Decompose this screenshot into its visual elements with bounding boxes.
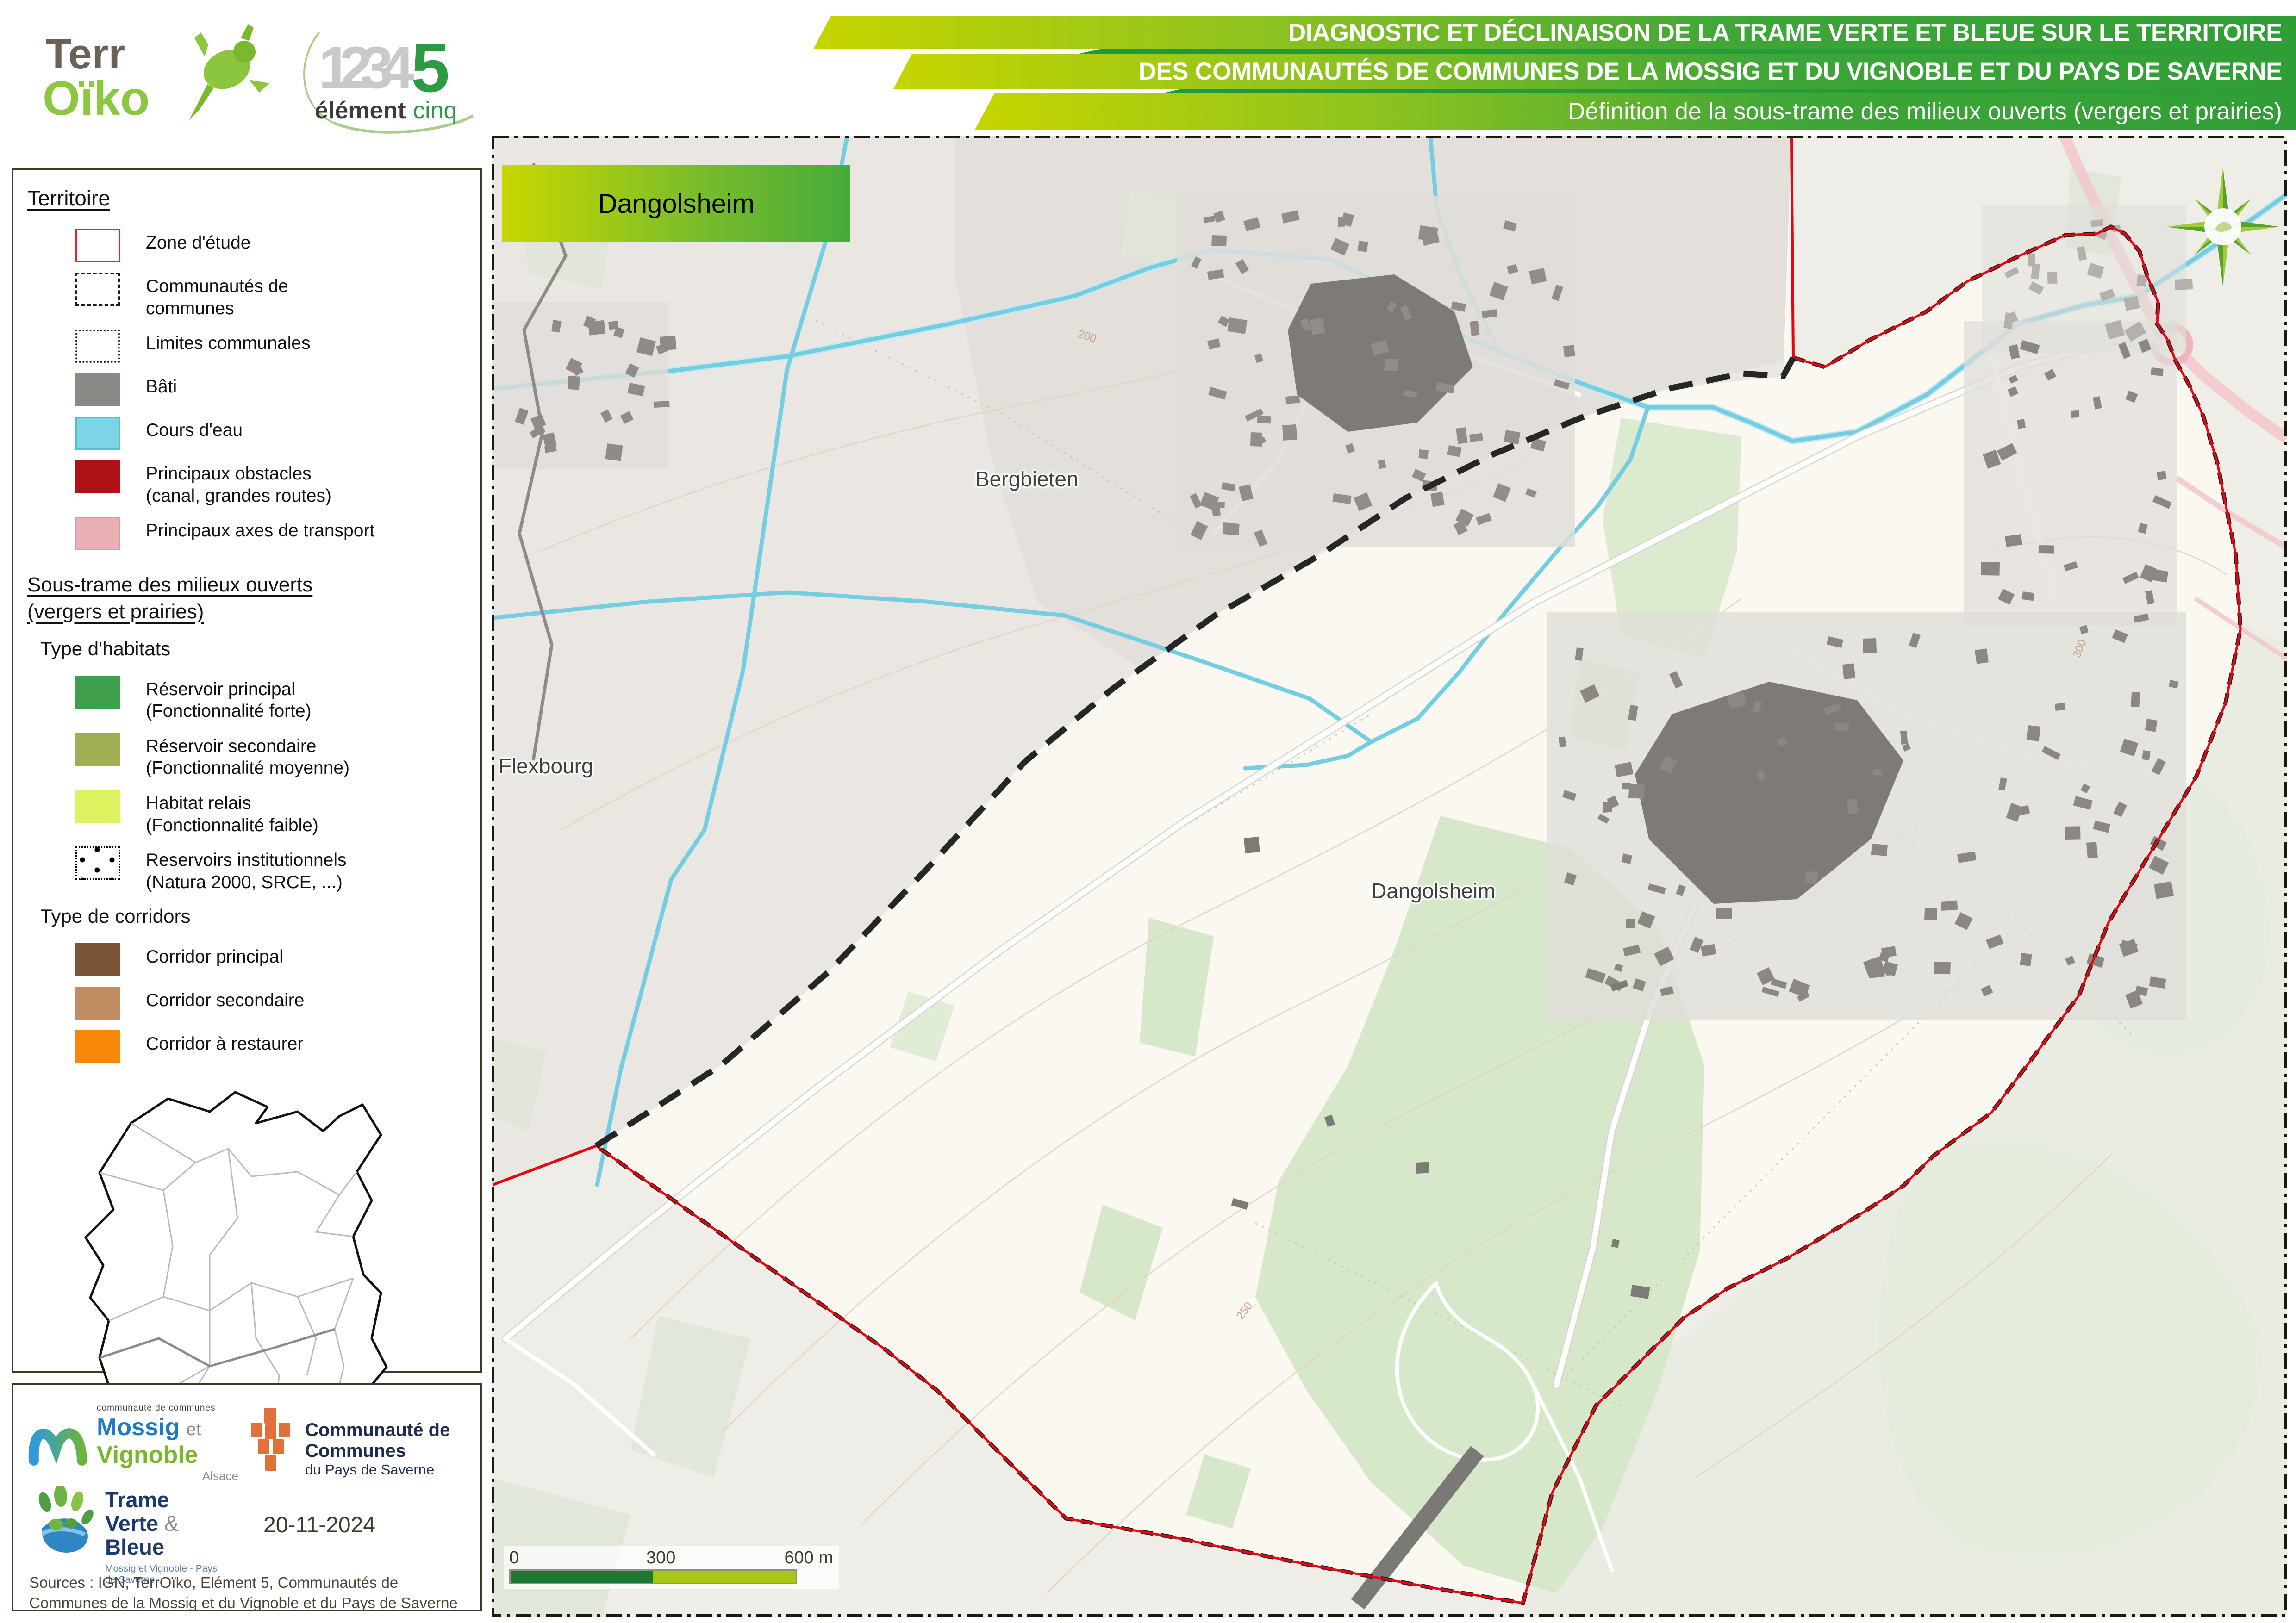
el5-word1: élément <box>315 97 406 124</box>
mossig-m-icon <box>27 1406 87 1466</box>
title-banner-1: DIAGNOSTIC ET DÉCLINAISON DE LA TRAME VE… <box>813 16 2296 49</box>
legend-swatch-icon <box>75 517 120 550</box>
legend-swatch-icon <box>75 846 120 880</box>
mossig-word2: Vignoble <box>97 1442 198 1468</box>
tvb-line2: Verte & Bleue <box>105 1512 226 1559</box>
legend-panel: Territoire Zone d'étudeCommunautés decom… <box>12 168 482 1373</box>
el5-five: 5 <box>411 29 449 106</box>
map-title-box: Dangolsheim <box>502 165 850 242</box>
legend-item-label: Corridor secondaire <box>146 987 305 1012</box>
legend-habitat-items: Réservoir principal(Fonctionnalité forte… <box>25 676 468 894</box>
terroiko-text-2: Oïko <box>43 72 150 125</box>
map-drawing: 200 250 300 <box>492 136 2287 1617</box>
pays-saverne-logo: Communauté de Communes du Pays de Savern… <box>245 1409 467 1478</box>
terroiko-text-1: Terr <box>45 31 125 78</box>
legend-swatch-icon <box>75 273 120 306</box>
legend-item-label: Bâti <box>146 373 177 398</box>
legend-swatch-icon <box>75 943 120 976</box>
legend-swatch-icon <box>75 417 120 450</box>
legend-item-label: Cours d'eau <box>146 417 243 442</box>
legend-section-territoire: Territoire <box>27 186 468 211</box>
legend-swatch-icon <box>75 229 120 262</box>
legend-swatch-icon <box>75 676 120 709</box>
mossig-word1: Mossig <box>97 1414 180 1441</box>
legend-swatch-icon <box>75 733 120 766</box>
legend-corridor-items: Corridor principalCorridor secondaireCor… <box>25 943 468 1063</box>
credits-panel: communauté de communes Mossig et Vignobl… <box>12 1383 482 1611</box>
frog-icon <box>189 24 269 120</box>
legend-item-label: Corridor à restaurer <box>146 1030 303 1055</box>
map-canvas: 200 250 300 <box>492 136 2287 1617</box>
label-bergbieten: Bergbieten <box>975 466 1079 491</box>
tvb-amp: & <box>164 1511 179 1536</box>
legend-item: Principaux obstacles(canal, grandes rout… <box>25 460 468 507</box>
legend-item: Réservoir secondaire(Fonctionnalité moye… <box>25 733 468 779</box>
legend-sub-habitats: Type d'habitats <box>40 638 468 660</box>
tvb-line1: Trame <box>105 1488 226 1512</box>
legend-swatch-icon <box>75 330 120 363</box>
mossig-main-text: Mossig et Vignoble <box>97 1413 240 1469</box>
map-date: 20-11-2024 <box>263 1512 375 1538</box>
terroiko-logo: Terr Oïko <box>42 14 282 125</box>
legend-item-label: Zone d'étude <box>146 229 250 254</box>
legend-item: Communautés decommunes <box>25 273 468 319</box>
soustrame-line1: Sous-trame des milieux ouverts <box>27 573 312 596</box>
legend-item: Bâti <box>25 373 468 406</box>
legend-item-label: Reservoirs institutionnels(Natura 2000, … <box>146 846 347 893</box>
scale-tick-300: 300 <box>646 1548 675 1568</box>
legend-item: Habitat relais(Fonctionnalité faible) <box>25 790 468 836</box>
legend-item-label: Réservoir principal(Fonctionnalité forte… <box>146 676 312 722</box>
title-banner-3: Définition de la sous-trame des milieux … <box>975 93 2296 130</box>
el5-word2: cinq <box>413 97 457 124</box>
legend-swatch-icon <box>75 373 120 406</box>
scale-bar-graphic <box>509 1569 797 1584</box>
legend-item: Corridor secondaire <box>25 987 468 1020</box>
legend-swatch-icon <box>75 987 120 1020</box>
saverne-diamonds-icon <box>245 1406 296 1475</box>
legend-item: Réservoir principal(Fonctionnalité forte… <box>25 676 468 722</box>
legend-item: Zone d'étude <box>25 229 468 262</box>
tvb-verte: Verte <box>105 1511 158 1536</box>
legend-item-label: Principaux axes de transport <box>146 517 374 542</box>
sources-text: Sources : IGN, TerrOïko, Elément 5, Comm… <box>29 1573 460 1613</box>
legend-item-label: Réservoir secondaire(Fonctionnalité moye… <box>146 733 349 779</box>
tvb-bleue: Bleue <box>105 1535 164 1559</box>
soustrame-line2: (vergers et prairies) <box>27 600 204 623</box>
mossig-vignoble-logo: communauté de communes Mossig et Vignobl… <box>27 1403 240 1477</box>
label-dangolsheim: Dangolsheim <box>1371 878 1495 903</box>
legend-item: Reservoirs institutionnels(Natura 2000, … <box>25 846 468 893</box>
scale-tick-600: 600 m <box>784 1548 833 1568</box>
saverne-line1: Communauté de Communes <box>305 1420 467 1461</box>
mossig-top-text: communauté de communes <box>97 1403 240 1413</box>
title-banner-2: DES COMMUNAUTÉS DE COMMUNES DE LA MOSSIG… <box>893 54 2296 89</box>
legend-section-soustrame: Sous-trame des milieux ouverts (vergers … <box>27 572 468 624</box>
legend-item: Cours d'eau <box>25 417 468 450</box>
label-flexbourg: Flexbourg <box>499 753 593 778</box>
legend-item: Limites communales <box>25 330 468 363</box>
legend-territoire-items: Zone d'étudeCommunautés decommunesLimite… <box>25 229 468 550</box>
legend-sub-corridors: Type de corridors <box>40 905 468 927</box>
trame-verte-bleue-logo: Trame Verte & Bleue Mossig et Vignoble -… <box>32 1486 226 1564</box>
legend-item: Corridor à restaurer <box>25 1030 468 1063</box>
map-sheet: Terr Oïko 1234 5 élément cinq DIAGNOSTIC… <box>0 0 2296 1623</box>
legend-item-label: Limites communales <box>146 330 310 354</box>
scale-ticks: 0 300 600 m <box>509 1548 833 1567</box>
legend-item-label: Habitat relais(Fonctionnalité faible) <box>146 790 318 836</box>
scale-tick-0: 0 <box>509 1548 519 1568</box>
elementcinq-logo: 1234 5 élément cinq <box>292 19 505 134</box>
legend-item: Corridor principal <box>25 943 468 976</box>
tvb-paw-icon <box>32 1486 97 1555</box>
legend-swatch-icon <box>75 460 120 493</box>
mossig-alsace: Alsace <box>97 1469 238 1483</box>
scale-bar: 0 300 600 m <box>504 1546 839 1589</box>
legend-item-label: Principaux obstacles(canal, grandes rout… <box>146 460 331 507</box>
legend-item-label: Communautés decommunes <box>146 273 288 319</box>
el5-numbers: 1234 <box>318 35 414 101</box>
legend-item: Principaux axes de transport <box>25 517 468 550</box>
legend-item-label: Corridor principal <box>146 943 283 968</box>
saverne-line2: du Pays de Saverne <box>305 1461 467 1478</box>
legend-swatch-icon <box>75 790 120 823</box>
mossig-et: et <box>187 1420 201 1439</box>
legend-swatch-icon <box>75 1030 120 1063</box>
